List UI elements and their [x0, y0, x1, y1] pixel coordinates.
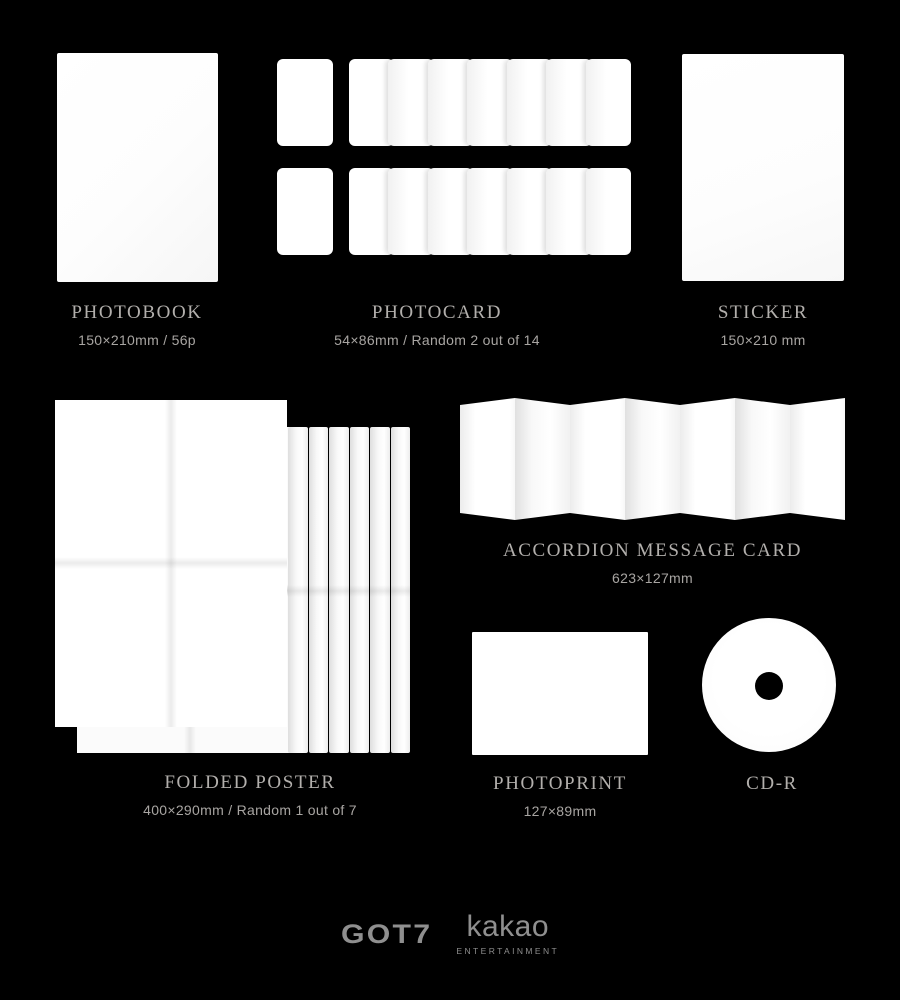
- photoprint-spec: 127×89mm: [470, 804, 650, 819]
- folded-poster-stack-edges: [287, 427, 410, 753]
- folded-poster-front-sheet: [55, 400, 287, 727]
- photocard-single-mockup: [277, 59, 333, 146]
- footer-logos: GOT7 kakao ENTERTAINMENT: [0, 912, 900, 956]
- cd-disc: [702, 618, 836, 752]
- accordion-panel: [790, 398, 845, 520]
- photocard-fan-mockup: [349, 168, 631, 255]
- photocard-card: [467, 59, 512, 146]
- accordion-panel: [680, 398, 735, 520]
- accordion-panel: [515, 398, 570, 520]
- accordion-label: ACCORDION MESSAGE CARD 623×127mm: [460, 541, 845, 586]
- photocard-card: [586, 59, 631, 146]
- photocard-card: [467, 168, 512, 255]
- cd-r-name: CD-R: [692, 774, 852, 795]
- cd-center-hole: [755, 672, 783, 700]
- poster-crease: [55, 557, 287, 569]
- photocard-card: [546, 168, 591, 255]
- accordion-panel: [460, 398, 515, 520]
- photobook-label: PHOTOBOOK 150×210mm / 56p: [17, 303, 257, 348]
- poster-crease: [287, 585, 410, 597]
- album-package-contents-board: PHOTOBOOK 150×210mm / 56p PHOTOCARD 54×8…: [0, 0, 900, 1000]
- sticker-spec: 150×210 mm: [643, 333, 883, 348]
- accordion-name: ACCORDION MESSAGE CARD: [460, 541, 845, 562]
- kakao-logo-text: kakao: [456, 912, 559, 942]
- photocard-card: [586, 168, 631, 255]
- photocard-single-mockup: [277, 168, 333, 255]
- accordion-spec: 623×127mm: [460, 571, 845, 586]
- sticker-label: STICKER 150×210 mm: [643, 303, 883, 348]
- photocard-fan-mockup: [349, 59, 631, 146]
- photoprint-name: PHOTOPRINT: [470, 774, 650, 795]
- photoprint-mockup: [472, 632, 648, 755]
- photocard-name: PHOTOCARD: [262, 303, 612, 324]
- accordion-message-card-mockup: [460, 398, 845, 520]
- photocard-card: [546, 59, 591, 146]
- folded-poster-name: FOLDED POSTER: [70, 773, 430, 794]
- got7-logo: GOT7: [341, 921, 432, 948]
- accordion-panel: [570, 398, 625, 520]
- accordion-panel: [625, 398, 680, 520]
- folded-poster-label: FOLDED POSTER 400×290mm / Random 1 out o…: [70, 773, 430, 818]
- kakao-entertainment-logo: kakao ENTERTAINMENT: [456, 912, 559, 956]
- kakao-entertainment-text: ENTERTAINMENT: [456, 946, 559, 956]
- photocard-label: PHOTOCARD 54×86mm / Random 2 out of 14: [262, 303, 612, 348]
- sticker-mockup: [682, 54, 844, 281]
- photobook-name: PHOTOBOOK: [17, 303, 257, 324]
- accordion-panel: [735, 398, 790, 520]
- photobook-spec: 150×210mm / 56p: [17, 333, 257, 348]
- sticker-name: STICKER: [643, 303, 883, 324]
- photocard-spec: 54×86mm / Random 2 out of 14: [262, 333, 612, 348]
- photobook-mockup: [57, 53, 218, 282]
- photoprint-label: PHOTOPRINT 127×89mm: [470, 774, 650, 819]
- cd-r-label: CD-R: [692, 774, 852, 795]
- folded-poster-spec: 400×290mm / Random 1 out of 7: [70, 803, 430, 818]
